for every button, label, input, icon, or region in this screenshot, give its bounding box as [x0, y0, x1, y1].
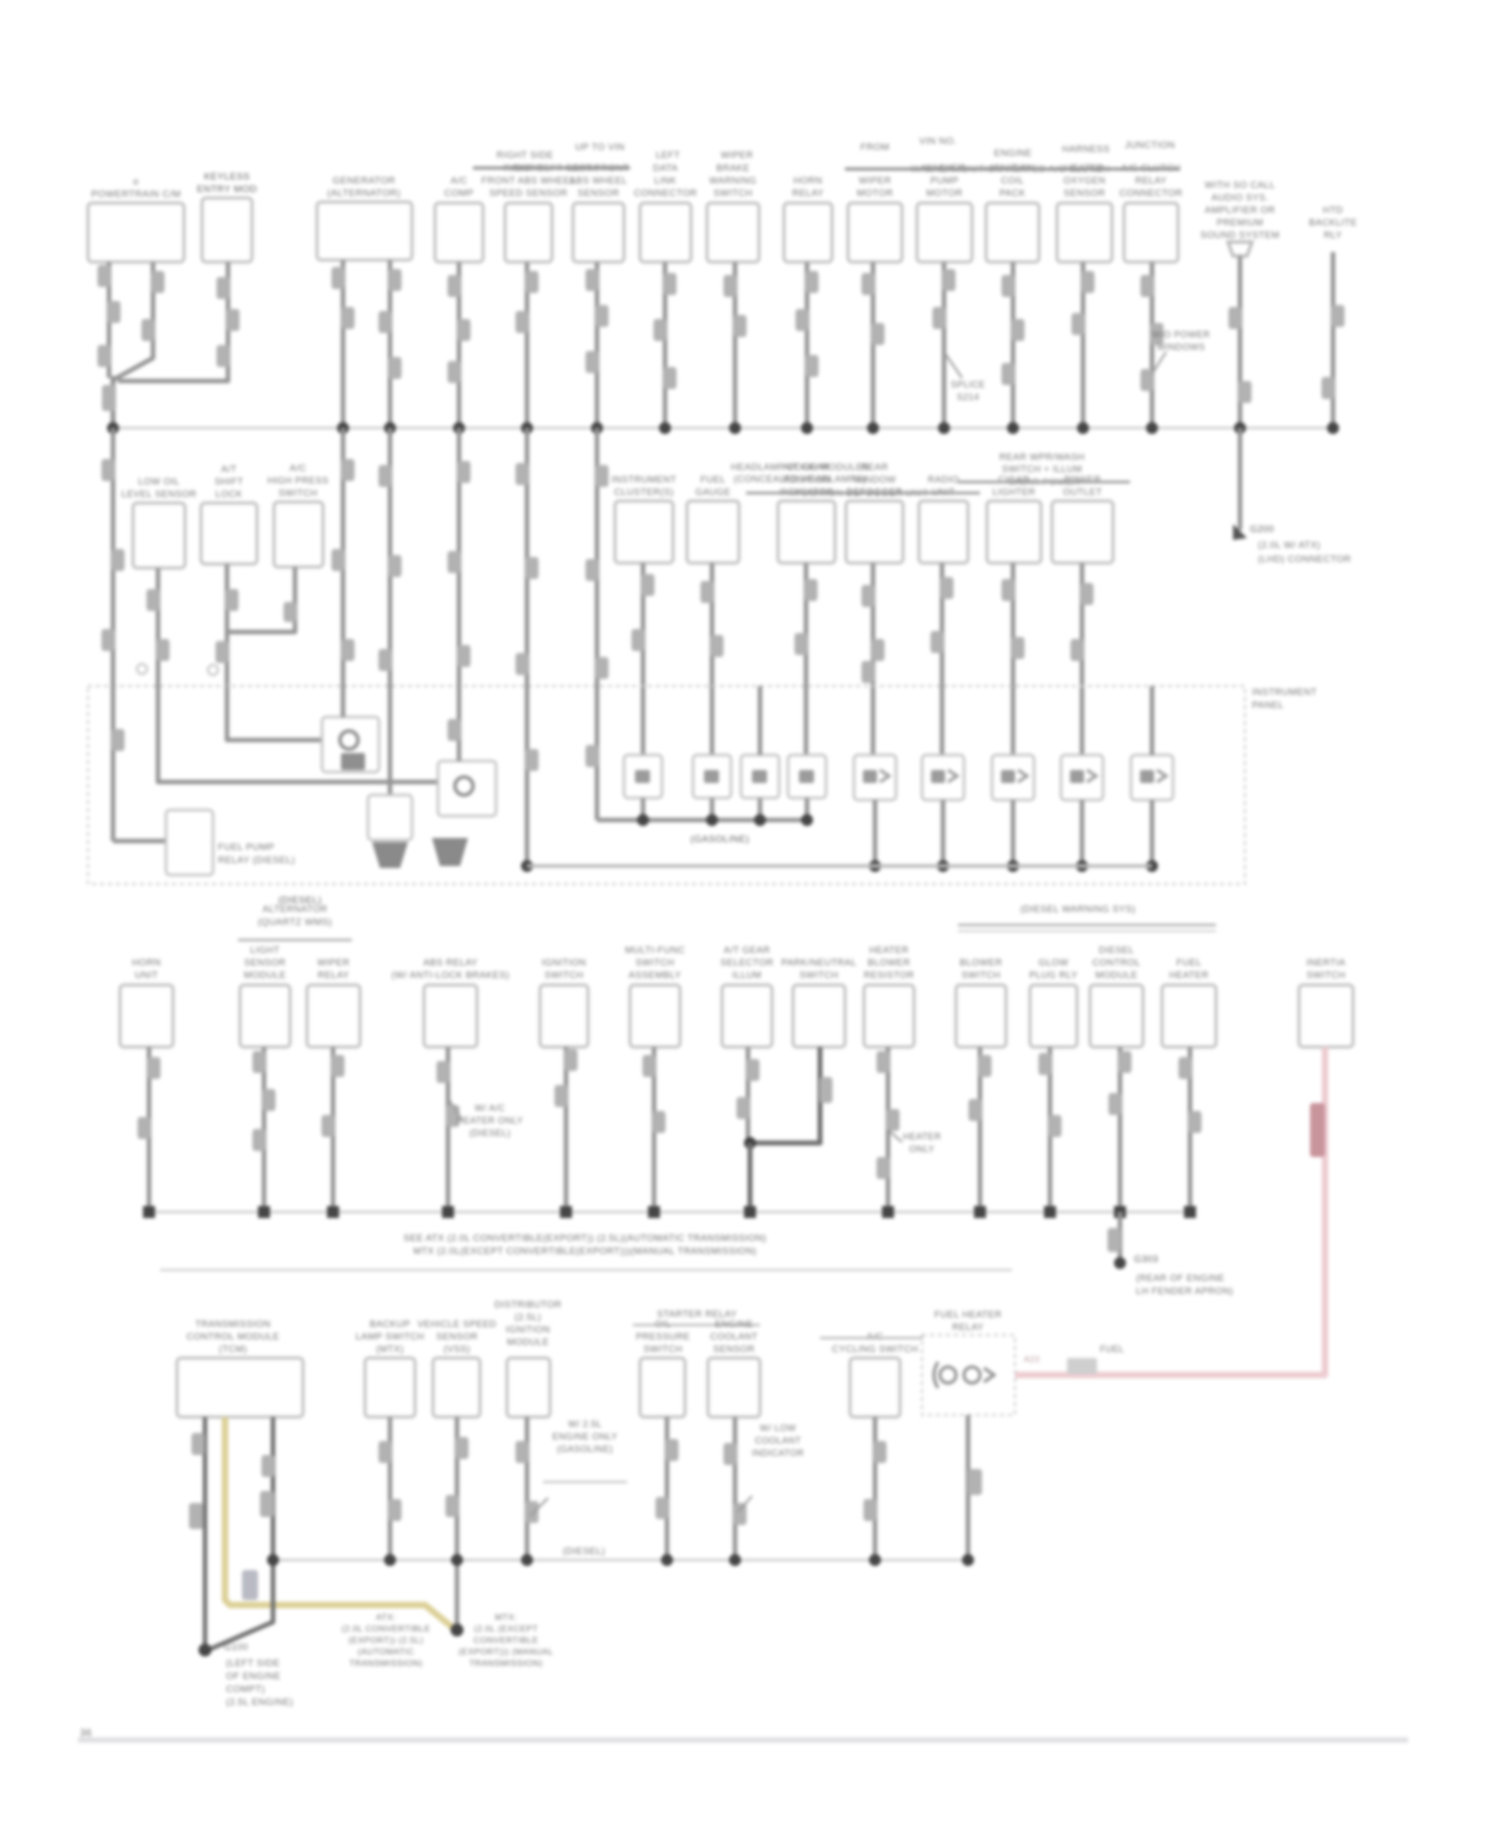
svg-text:COMPT): COMPT)	[226, 1684, 265, 1694]
svg-text:VEHICLE SPEED: VEHICLE SPEED	[417, 1319, 496, 1329]
svg-text:(CONCEALED HEADLAMPS): (CONCEALED HEADLAMPS)	[734, 474, 866, 484]
svg-text:MULTI-FUNC: MULTI-FUNC	[625, 945, 685, 955]
svg-text:PARK/NEUTRAL: PARK/NEUTRAL	[781, 958, 856, 968]
svg-text:COMP: COMP	[444, 188, 474, 198]
svg-text:W/ 2.5L: W/ 2.5L	[568, 1419, 602, 1429]
svg-text:ATX:: ATX:	[376, 1612, 396, 1622]
svg-text:CIGAR POWER: CIGAR POWER	[1008, 477, 1080, 487]
svg-text:RELAY: RELAY	[1135, 176, 1167, 186]
svg-text:LEVEL SENSOR: LEVEL SENSOR	[121, 489, 196, 499]
svg-text:HIGH PRESS: HIGH PRESS	[267, 476, 328, 486]
svg-text:PUMP: PUMP	[930, 176, 958, 186]
svg-text:RELAY: RELAY	[318, 970, 350, 980]
svg-text:ENGINE ONLY: ENGINE ONLY	[552, 1432, 617, 1442]
svg-text:PACK: PACK	[999, 188, 1026, 198]
svg-text:G100: G100	[224, 1642, 248, 1652]
svg-text:(2.5L): (2.5L)	[515, 1312, 542, 1322]
svg-text:BACKUP: BACKUP	[370, 1319, 411, 1329]
svg-text:CONTROL: CONTROL	[1092, 958, 1140, 968]
svg-text:OXYGEN: OXYGEN	[1063, 176, 1105, 186]
svg-text:SWITCH: SWITCH	[1306, 970, 1345, 980]
svg-text:LINK: LINK	[654, 176, 677, 186]
svg-text:SENSOR: SENSOR	[578, 188, 620, 198]
svg-text:SELECTOR: SELECTOR	[720, 958, 773, 968]
svg-text:SHIFT: SHIFT	[215, 477, 244, 487]
svg-text:OF ENGINE: OF ENGINE	[226, 1671, 281, 1681]
svg-text:G200: G200	[1250, 524, 1274, 534]
svg-text:WITH SO CALL: WITH SO CALL	[1205, 180, 1275, 190]
svg-text:HARNESS: HARNESS	[1062, 144, 1110, 154]
svg-text:LEFT: LEFT	[656, 150, 680, 160]
svg-text:GENERATOR: GENERATOR	[333, 176, 396, 187]
svg-text:MODULE: MODULE	[507, 1337, 549, 1347]
svg-text:AMPLIFIER OR: AMPLIFIER OR	[1205, 205, 1275, 215]
svg-text:o: o	[133, 177, 139, 188]
svg-text:PLUG RLY: PLUG RLY	[1029, 970, 1078, 980]
svg-text:HEADLAMP DOOR MODULES: HEADLAMP DOOR MODULES	[731, 462, 869, 472]
svg-text:G303: G303	[1134, 1254, 1158, 1264]
svg-text:JUNCTION: JUNCTION	[1125, 140, 1175, 150]
svg-text:(2.0L W/ ATX): (2.0L W/ ATX)	[1258, 540, 1321, 550]
svg-text:CONNECTOR: CONNECTOR	[634, 188, 697, 198]
svg-text:RLY: RLY	[1324, 230, 1343, 240]
svg-text:(2.5L ENGINE): (2.5L ENGINE)	[226, 1697, 293, 1707]
svg-text:SWITCH: SWITCH	[961, 970, 1000, 980]
svg-text:(LEFT SIDE: (LEFT SIDE	[226, 1658, 280, 1668]
svg-text:(TCM): (TCM)	[219, 1344, 247, 1354]
svg-text:A/T GEAR: A/T GEAR	[724, 945, 770, 955]
svg-text:HEATER: HEATER	[1169, 970, 1208, 980]
svg-text:DISTRIBUTOR: DISTRIBUTOR	[494, 1300, 561, 1310]
svg-text:SWITCH: SWITCH	[544, 970, 583, 980]
svg-text:WINDOWS: WINDOWS	[1157, 342, 1205, 352]
svg-text:(DIESEL): (DIESEL)	[563, 1546, 605, 1556]
svg-text:BRAKE: BRAKE	[716, 163, 750, 173]
svg-text:(LHD) CONNECTOR: (LHD) CONNECTOR	[1258, 554, 1351, 564]
svg-text:BLOWER: BLOWER	[960, 958, 1003, 968]
svg-text:ENGINE: ENGINE	[715, 1319, 753, 1329]
svg-text:A/T: A/T	[221, 464, 237, 474]
svg-text:SWITCH: SWITCH	[713, 188, 752, 198]
svg-text:(GASOLINE): (GASOLINE)	[557, 1444, 613, 1454]
svg-text:HEATER: HEATER	[869, 945, 908, 955]
svg-text:(EXPORT))) (MANUAL: (EXPORT))) (MANUAL	[459, 1647, 554, 1657]
svg-text:SEE ATX (2.0L CONVERTIBLE(E: SEE ATX (2.0L CONVERTIBLE(EXPORT)) (2.5L…	[404, 1233, 767, 1243]
svg-text:LAMP SWITCH: LAMP SWITCH	[356, 1332, 425, 1342]
svg-text:INDICATOR: INDICATOR	[752, 1448, 804, 1458]
svg-text:ONLY: ONLY	[909, 1144, 934, 1154]
svg-text:POSITION DEFOGGER UNIT: POSITION DEFOGGER UNIT	[795, 488, 928, 498]
svg-text:ILLUM: ILLUM	[732, 970, 761, 980]
svg-text:INSTRUMENT: INSTRUMENT	[1252, 687, 1317, 697]
svg-text:(VSS): (VSS)	[444, 1344, 471, 1354]
svg-text:STARTER RELAY: STARTER RELAY	[657, 1309, 737, 1319]
svg-text:ABS RELAY: ABS RELAY	[423, 958, 478, 968]
svg-text:RELAY: RELAY	[792, 188, 824, 198]
svg-text:MOTOR: MOTOR	[926, 188, 962, 198]
svg-text:WIPER: WIPER	[721, 150, 753, 160]
svg-text:(MTX): (MTX)	[376, 1344, 404, 1354]
svg-text:VIN NO.: VIN NO.	[919, 136, 956, 146]
svg-text:(GASOLINE): (GASOLINE)	[691, 834, 750, 845]
svg-text:WIPER: WIPER	[859, 176, 891, 186]
svg-text:A/C: A/C	[451, 176, 468, 186]
svg-text:INERTIA: INERTIA	[1306, 958, 1346, 968]
svg-text:SPEED SENSOR: SPEED SENSOR	[489, 188, 567, 198]
svg-text:SWITCH: SWITCH	[278, 488, 317, 498]
svg-text:LH FENDER APRON): LH FENDER APRON)	[1136, 1286, 1233, 1296]
svg-text:FUEL: FUEL	[700, 475, 725, 485]
svg-text:TRANSMISSION: TRANSMISSION	[195, 1319, 271, 1329]
svg-text:BACKLITE: BACKLITE	[1309, 218, 1357, 228]
svg-text:CONNECTOR: CONNECTOR	[1119, 188, 1182, 198]
svg-text:(DIESEL WARNING SYS): (DIESEL WARNING SYS)	[1020, 904, 1135, 914]
svg-text:36: 36	[80, 1728, 92, 1739]
svg-text:WIPER: WIPER	[317, 958, 349, 968]
svg-text:SWITCH + ILLUM: SWITCH + ILLUM	[1002, 464, 1082, 474]
svg-text:MTX:: MTX:	[495, 1612, 517, 1622]
svg-text:BLOWER: BLOWER	[868, 958, 911, 968]
svg-text:FROM: FROM	[861, 142, 890, 152]
svg-text:MODULE: MODULE	[244, 970, 286, 980]
svg-text:RIGHT SIDE: RIGHT SIDE	[496, 150, 553, 160]
svg-text:CLUSTER(S): CLUSTER(S)	[614, 487, 674, 497]
svg-text:SENSOR: SENSOR	[713, 1344, 755, 1354]
svg-text:MOTOR: MOTOR	[857, 188, 893, 198]
svg-text:(EXPORT)) (2.5L): (EXPORT)) (2.5L)	[348, 1635, 423, 1645]
svg-text:KEYLESS: KEYLESS	[204, 172, 250, 183]
svg-text:CONVERTIBLE: CONVERTIBLE	[474, 1635, 539, 1645]
svg-text:W/ LOW: W/ LOW	[760, 1423, 797, 1433]
svg-text:(QUARTZ WMS): (QUARTZ WMS)	[258, 917, 332, 927]
svg-text:RESISTOR: RESISTOR	[864, 970, 915, 980]
svg-text:A22: A22	[1024, 1354, 1040, 1364]
svg-text:GLOW: GLOW	[1038, 958, 1068, 968]
svg-text:LOCK: LOCK	[216, 489, 243, 499]
svg-text:HEATER: HEATER	[903, 1132, 941, 1142]
svg-text:HTD: HTD	[1323, 205, 1343, 215]
svg-text:TRANSMISSION): TRANSMISSION)	[349, 1658, 422, 1668]
svg-text:COIL: COIL	[1001, 176, 1024, 186]
svg-text:COOLANT: COOLANT	[755, 1436, 801, 1446]
svg-text:FUEL PUMP: FUEL PUMP	[218, 842, 274, 852]
svg-text:(DIESEL): (DIESEL)	[469, 1128, 510, 1138]
svg-text:SWITCH: SWITCH	[799, 970, 838, 980]
svg-text:CONTROL MODULE: CONTROL MODULE	[186, 1332, 279, 1342]
svg-text:SWITCH: SWITCH	[635, 958, 674, 968]
svg-text:LIGHTER: LIGHTER	[992, 487, 1035, 497]
svg-text:POWERTRAIN C/M: POWERTRAIN C/M	[91, 189, 181, 200]
svg-text:A/C: A/C	[290, 463, 307, 473]
svg-text:RELAY: RELAY	[952, 1322, 984, 1332]
svg-text:PANEL: PANEL	[1252, 700, 1284, 710]
svg-text:GAUGE: GAUGE	[695, 487, 731, 497]
svg-text:FRONT ABS WHEEL: FRONT ABS WHEEL	[481, 176, 575, 186]
svg-text:WASHER IGNITION HEATED A/C: WASHER IGNITION HEATED A/C CLUTCH	[911, 164, 1110, 175]
svg-text:FUEL: FUEL	[1100, 1344, 1124, 1354]
svg-text:W/ A/C: W/ A/C	[475, 1103, 506, 1113]
svg-text:SENSOR: SENSOR	[1064, 188, 1106, 198]
svg-text:LOW OIL: LOW OIL	[138, 477, 180, 487]
svg-text:INSTRUMENT: INSTRUMENT	[612, 475, 677, 485]
svg-text:(REAR OF ENGINE: (REAR OF ENGINE	[1136, 1273, 1225, 1283]
svg-text:WARNING: WARNING	[709, 176, 756, 186]
svg-text:RELAY (DIESEL): RELAY (DIESEL)	[218, 855, 295, 865]
svg-text:CYCLING SWITCH: CYCLING SWITCH	[832, 1344, 918, 1354]
svg-text:ABS WHEEL: ABS WHEEL	[570, 176, 628, 186]
svg-text:AUDIO SYS.: AUDIO SYS.	[1211, 193, 1268, 203]
svg-text:UP TO VIN: UP TO VIN	[575, 142, 625, 152]
svg-text:FUEL: FUEL	[1176, 958, 1201, 968]
svg-text:HORN: HORN	[132, 958, 161, 968]
svg-text:IGNITION: IGNITION	[542, 958, 587, 968]
svg-text:COOLANT: COOLANT	[710, 1332, 758, 1342]
svg-text:ASSEMBLY: ASSEMBLY	[629, 970, 682, 980]
svg-text:SPLICE: SPLICE	[951, 380, 985, 390]
svg-text:SENSOR: SENSOR	[244, 958, 286, 968]
svg-text:OUTLET: OUTLET	[1063, 487, 1102, 497]
svg-text:MTX (2.0L(EXCEPT CONVERTIBLE(: MTX (2.0L(EXCEPT CONVERTIBLE(EXPORT)))(M…	[413, 1246, 756, 1256]
svg-text:ALTERNATOR: ALTERNATOR	[263, 904, 328, 914]
svg-text:PREMIUM: PREMIUM	[1217, 218, 1264, 228]
svg-text:SOUND SYSTEM: SOUND SYSTEM	[1200, 230, 1279, 240]
svg-text:(AUTOMATIC: (AUTOMATIC	[358, 1647, 415, 1657]
svg-text:FUEL HEATER: FUEL HEATER	[934, 1310, 1001, 1320]
svg-text:IGNITION: IGNITION	[506, 1325, 551, 1335]
svg-text:UNIT: UNIT	[135, 970, 158, 980]
svg-text:RADIO: RADIO	[928, 475, 959, 485]
svg-text:(2.0L CONVERTIBLE: (2.0L CONVERTIBLE	[342, 1624, 431, 1634]
svg-text:RIGHT LEFT FRONT: RIGHT LEFT FRONT	[504, 163, 601, 174]
svg-text:W/O POWER: W/O POWER	[1152, 330, 1210, 340]
svg-text:DATA: DATA	[653, 163, 678, 173]
svg-text:SENSOR: SENSOR	[436, 1332, 478, 1342]
svg-text:HEATER ONLY: HEATER ONLY	[457, 1116, 524, 1126]
svg-text:REAR WPR/WASH: REAR WPR/WASH	[999, 452, 1084, 462]
svg-text:SWITCH: SWITCH	[643, 1344, 682, 1354]
svg-text:PRESSURE: PRESSURE	[636, 1332, 690, 1342]
svg-text:MODULE: MODULE	[1095, 970, 1137, 980]
svg-text:ENTRY MOD: ENTRY MOD	[197, 184, 257, 195]
svg-text:ENGINE: ENGINE	[994, 148, 1032, 158]
svg-text:S214: S214	[957, 392, 980, 402]
svg-text:A/C: A/C	[867, 1332, 884, 1342]
svg-text:HORN: HORN	[794, 176, 823, 186]
svg-text:(W/ ANTI-LOCK BRAKES): (W/ ANTI-LOCK BRAKES)	[392, 970, 510, 980]
svg-text:(2.0L (EXCEPT: (2.0L (EXCEPT	[474, 1624, 538, 1634]
svg-text:DIESEL: DIESEL	[1099, 945, 1134, 955]
svg-text:(ALTERNATOR): (ALTERNATOR)	[327, 188, 400, 199]
svg-text:TRANSMISSION): TRANSMISSION)	[469, 1658, 542, 1668]
svg-text:LIGHT: LIGHT	[250, 945, 279, 955]
